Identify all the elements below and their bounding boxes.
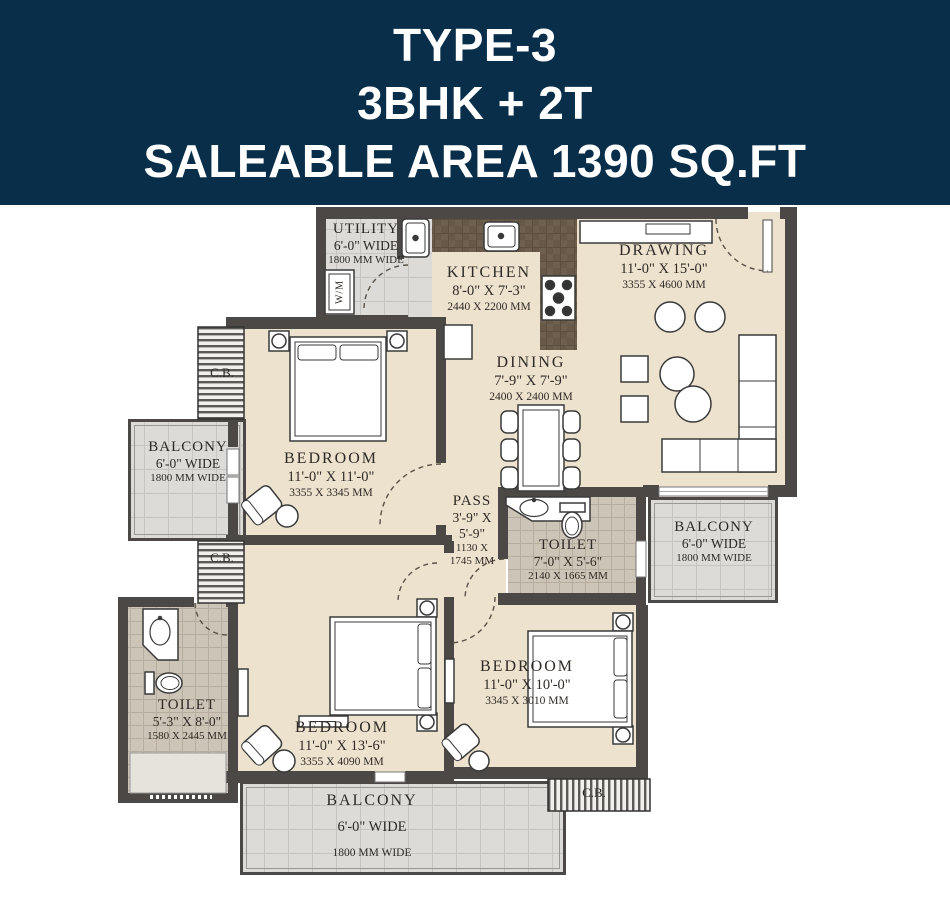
wall-toilet-left-north bbox=[118, 597, 194, 607]
utility-sink-icon bbox=[402, 219, 429, 257]
side-table-icon bbox=[621, 356, 648, 382]
round-table-icon bbox=[469, 751, 489, 771]
room-label-bedroom-middle: BEDROOM 11'-0" X 13'-6" 3355 X 4090 MM bbox=[295, 718, 389, 770]
toilet-mid-window bbox=[636, 541, 646, 577]
round-table-icon bbox=[273, 750, 295, 772]
dining-chair-icon bbox=[563, 411, 580, 433]
wall-right bbox=[785, 207, 797, 497]
cupboard-label-mid: C.B. bbox=[210, 550, 234, 566]
stove-icon bbox=[542, 276, 575, 320]
dining-chair-icon bbox=[501, 467, 518, 489]
round-table-icon bbox=[276, 505, 298, 527]
dining-chair-icon bbox=[501, 439, 518, 461]
floor-plan: UTILITY 6'-0" WIDE 1800 MM WIDE KITCHEN … bbox=[0, 205, 950, 900]
round-table-icon bbox=[655, 302, 685, 332]
dining-chair-icon bbox=[563, 467, 580, 489]
wall-toilet-mid-east-a bbox=[636, 497, 646, 541]
wall-top bbox=[316, 207, 748, 219]
bed-icon bbox=[269, 331, 407, 441]
wall-bedroom-top-south bbox=[226, 535, 452, 545]
wall-toilet-mid-west bbox=[498, 497, 508, 559]
wall-bedroom-top-north bbox=[226, 317, 446, 329]
main-door-leaf bbox=[763, 220, 772, 272]
room-label-kitchen: KITCHEN 8'-0" X 7'-3" 2440 X 2200 MM bbox=[447, 263, 531, 315]
room-label-balcony-bottom: BALCONY 6'-0" WIDE 1800 MM WIDE bbox=[326, 791, 417, 861]
balcony-bottom-door bbox=[375, 772, 405, 782]
cupboard-label-top: C.B. bbox=[210, 365, 234, 381]
room-label-dining: DINING 7'-9" X 7'-9" 2400 X 2400 MM bbox=[489, 353, 572, 405]
room-label-pass: PASS 3'-9" X 5'-9" 1130 X 1745 MM bbox=[450, 493, 494, 568]
wall-bedroom-right-north bbox=[498, 593, 646, 605]
wall-drawing-bottom-left bbox=[643, 485, 659, 497]
wall-toilet-left-west bbox=[118, 597, 128, 803]
dining-chair-icon bbox=[501, 411, 518, 433]
plan-config-title: 3BHK + 2T bbox=[357, 74, 593, 132]
bed-icon bbox=[330, 599, 437, 731]
dining-chair-icon bbox=[563, 439, 580, 461]
console-icon bbox=[580, 221, 712, 243]
wc-icon bbox=[145, 672, 182, 694]
dresser-icon bbox=[238, 669, 248, 716]
side-table-icon bbox=[621, 396, 648, 422]
wall-bedroom-middle-south-a bbox=[226, 771, 375, 783]
kitchen-sink-icon bbox=[484, 222, 519, 251]
wall-toilet-mid-east-b bbox=[636, 577, 646, 605]
round-table-icon bbox=[695, 302, 725, 332]
balcony-left-door-2 bbox=[227, 477, 239, 503]
washing-machine-label: W/M bbox=[335, 280, 346, 304]
room-label-toilet-mid: TOILET 7'-0" X 5'-6" 2140 X 1665 MM bbox=[528, 537, 608, 583]
wall-drawing-bottom-right bbox=[768, 485, 797, 497]
room-label-bedroom-right: BEDROOM 11'-0" X 10'-0" 3345 X 3010 MM bbox=[480, 657, 574, 709]
dining-table-icon bbox=[501, 405, 580, 491]
room-label-bedroom-top: BEDROOM 11'-0" X 11'-0" 3355 X 3345 MM bbox=[284, 449, 378, 501]
wall-toilet-left-south bbox=[118, 793, 238, 803]
room-label-balcony-left: BALCONY 6'-0" WIDE 1800 MM WIDE bbox=[148, 439, 228, 485]
room-label-drawing: DRAWING 11'-0" X 15'-0" 3355 X 4600 MM bbox=[619, 241, 709, 293]
wall-bedroom-middle-south-b bbox=[405, 771, 454, 783]
room-label-balcony-right: BALCONY 6'-0" WIDE 1800 MM WIDE bbox=[674, 519, 754, 565]
dresser-icon bbox=[445, 659, 454, 703]
plan-area-title: SALEABLE AREA 1390 SQ.FT bbox=[144, 132, 807, 190]
balcony-left-door bbox=[227, 449, 239, 475]
title-banner: TYPE-3 3BHK + 2T SALEABLE AREA 1390 SQ.F… bbox=[0, 0, 950, 205]
wall-bedroom-right-east bbox=[636, 605, 648, 777]
fridge-icon bbox=[444, 325, 472, 359]
cupboard-label-bottom: C.B. bbox=[582, 785, 606, 801]
plan-type-title: TYPE-3 bbox=[393, 16, 557, 74]
shower-area bbox=[130, 753, 226, 793]
round-chair-icon bbox=[675, 386, 711, 422]
room-label-toilet-left: TOILET 5'-3" X 8'-0" 1580 X 2445 MM bbox=[147, 697, 227, 743]
room-label-utility: UTILITY 6'-0" WIDE 1800 MM WIDE bbox=[328, 221, 404, 267]
